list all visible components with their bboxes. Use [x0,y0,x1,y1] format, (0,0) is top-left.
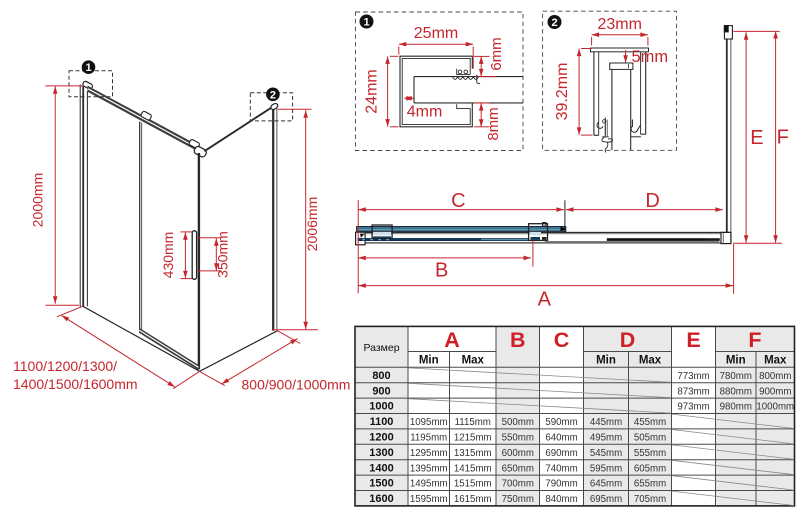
svg-text:Размер: Размер [363,342,399,354]
svg-text:2000mm: 2000mm [29,173,45,227]
svg-text:F: F [777,127,789,149]
svg-text:1200: 1200 [369,432,393,444]
svg-text:5mm: 5mm [632,48,669,66]
svg-text:1115mm: 1115mm [455,417,491,428]
svg-text:1400: 1400 [369,462,393,474]
svg-text:39.2mm: 39.2mm [554,63,571,121]
svg-text:980mm: 980mm [720,402,752,413]
svg-text:780mm: 780mm [720,371,752,382]
svg-text:600mm: 600mm [502,448,534,459]
svg-text:445mm: 445mm [590,417,622,428]
svg-text:550mm: 550mm [502,433,534,444]
svg-text:E: E [686,328,700,352]
svg-text:1315mm: 1315mm [454,448,492,459]
svg-text:D: D [620,328,636,352]
svg-text:700mm: 700mm [502,479,534,490]
svg-text:645mm: 645mm [590,479,622,490]
svg-text:640mm: 640mm [545,433,577,444]
svg-text:1395mm: 1395mm [410,463,448,474]
svg-text:Max: Max [639,354,662,366]
svg-text:590mm: 590mm [545,417,577,428]
svg-text:E: E [750,127,763,149]
svg-text:545mm: 545mm [590,448,622,459]
svg-text:873mm: 873mm [677,386,709,397]
svg-text:Min: Min [596,354,616,366]
svg-text:1400/1500/1600mm: 1400/1500/1600mm [13,376,138,392]
svg-text:1: 1 [363,16,369,28]
svg-text:705mm: 705mm [634,494,666,505]
svg-text:750mm: 750mm [502,494,534,505]
svg-text:6mm: 6mm [488,37,505,70]
svg-text:350mm: 350mm [215,231,231,278]
svg-text:C: C [554,328,570,352]
svg-text:F: F [748,328,761,352]
svg-text:605mm: 605mm [634,463,666,474]
svg-text:900: 900 [372,385,390,397]
svg-text:1500: 1500 [369,478,393,490]
svg-text:Max: Max [764,354,787,366]
svg-text:800/900/1000mm: 800/900/1000mm [242,377,351,393]
svg-text:B: B [435,259,448,281]
svg-text:655mm: 655mm [634,479,666,490]
svg-text:1100: 1100 [370,416,394,428]
svg-text:740mm: 740mm [545,463,577,474]
svg-text:880mm: 880mm [720,386,752,397]
svg-text:1000mm: 1000mm [756,402,794,413]
svg-text:Min: Min [726,354,746,366]
svg-text:1: 1 [85,62,91,74]
svg-text:1095mm: 1095mm [410,417,448,428]
svg-text:555mm: 555mm [634,448,666,459]
svg-text:Max: Max [462,354,485,366]
svg-text:1595mm: 1595mm [410,494,448,505]
svg-text:1215mm: 1215mm [454,433,492,444]
svg-text:1495mm: 1495mm [410,479,448,490]
svg-text:1300: 1300 [369,447,393,459]
svg-text:595mm: 595mm [590,463,622,474]
svg-text:C: C [451,190,465,212]
svg-text:A: A [444,328,460,352]
svg-text:1195mm: 1195mm [410,433,447,444]
svg-text:695mm: 695mm [590,494,622,505]
svg-text:505mm: 505mm [634,433,666,444]
svg-text:2006mm: 2006mm [304,197,320,251]
svg-text:23mm: 23mm [597,16,641,33]
svg-text:1600: 1600 [369,493,393,505]
svg-text:800: 800 [372,370,390,382]
svg-text:1100/1200/1300/: 1100/1200/1300/ [13,358,117,374]
svg-text:D: D [645,190,659,212]
svg-text:1295mm: 1295mm [410,448,448,459]
svg-text:840mm: 840mm [545,494,577,505]
svg-text:650mm: 650mm [502,463,534,474]
svg-text:2: 2 [551,17,557,29]
svg-text:4mm: 4mm [407,103,443,120]
svg-text:A: A [538,288,552,310]
svg-text:800mm: 800mm [759,371,791,382]
svg-text:973mm: 973mm [677,402,709,413]
svg-text:25mm: 25mm [414,25,458,42]
svg-text:Min: Min [419,354,439,366]
svg-text:B: B [510,328,526,352]
svg-text:24mm: 24mm [363,69,380,113]
svg-text:2: 2 [270,89,276,101]
svg-text:430mm: 430mm [160,232,176,279]
svg-text:1000: 1000 [369,401,393,413]
svg-text:8mm: 8mm [485,107,502,140]
svg-text:690mm: 690mm [545,448,577,459]
svg-text:1515mm: 1515mm [454,479,492,490]
svg-text:500mm: 500mm [502,417,534,428]
svg-text:773mm: 773mm [677,371,709,382]
svg-text:1615mm: 1615mm [454,494,492,505]
svg-text:1415mm: 1415mm [454,463,492,474]
svg-text:495mm: 495mm [590,433,622,444]
svg-text:900mm: 900mm [759,386,791,397]
svg-text:790mm: 790mm [545,479,577,490]
svg-text:455mm: 455mm [634,417,666,428]
